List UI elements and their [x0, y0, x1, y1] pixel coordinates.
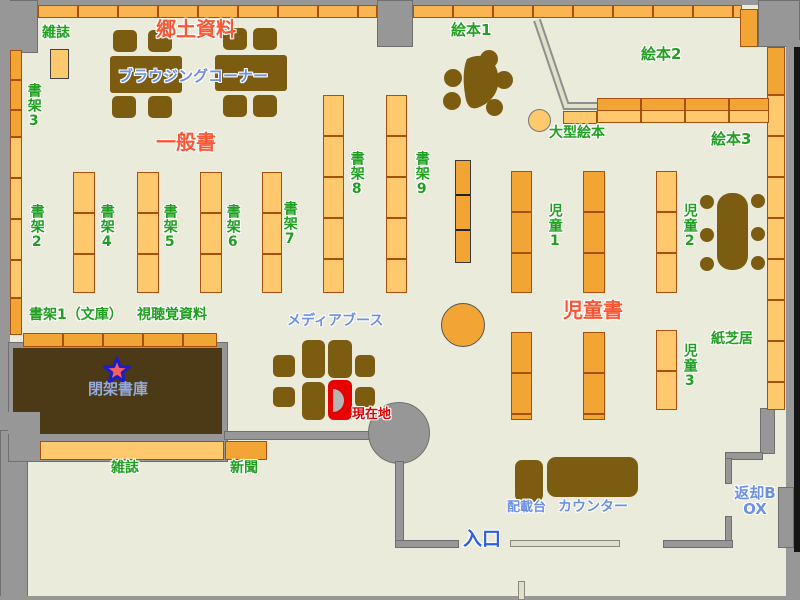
- label-large-picture-book: 大型絵本: [549, 126, 605, 141]
- children-table-chair: [700, 257, 714, 271]
- label-audiovisual: 視聴覚資料: [137, 308, 207, 323]
- label-picture-book2: 絵本2: [641, 47, 681, 63]
- label-kamishibai: 紙芝居: [711, 332, 753, 347]
- ehon1-chair: [443, 92, 461, 110]
- round-table: [441, 303, 485, 347]
- entrance-door: [510, 540, 620, 547]
- wall-right-black-strip: [794, 47, 800, 552]
- shelf-bunko-row: [23, 333, 217, 347]
- shelf-children-upper-2: [583, 171, 605, 293]
- children-table-chair: [700, 228, 714, 242]
- ehon1-chair: [495, 71, 513, 89]
- label-picture-book3: 絵本3: [711, 132, 751, 148]
- wall-mid-horizontal: [224, 431, 370, 440]
- browsing-chair: [113, 30, 137, 52]
- children-table-chair: [700, 195, 714, 209]
- large-picture-book-stand: [528, 109, 551, 132]
- media-booth-seat: [355, 387, 375, 407]
- children-table: [717, 193, 748, 270]
- shelf-children-lower-3: [656, 330, 677, 410]
- label-magazine-top: 雑誌: [42, 26, 70, 41]
- label-children3: 児童3: [682, 343, 697, 390]
- counter-desk: [547, 457, 638, 497]
- shelf-children-upper-1: [511, 171, 532, 293]
- shelf-left-wall-upper: [10, 50, 22, 137]
- media-booth-carrel: [302, 340, 325, 378]
- label-children2: 児童2: [682, 203, 697, 250]
- label-entrance: 入口: [463, 530, 501, 550]
- label-closed-stacks: 閉架書庫: [88, 382, 148, 398]
- shelf-column-8: [323, 95, 344, 293]
- browsing-chair: [112, 96, 136, 118]
- diagonal-partition-fill: [537, 20, 597, 106]
- shelf-children-lower-1: [511, 332, 532, 420]
- shelf-topright-vertical: [740, 9, 758, 47]
- shelf-column-9: [386, 95, 407, 293]
- label-media-booth: メディアブース: [287, 314, 383, 329]
- label-shelf5: 書架5: [162, 204, 177, 251]
- children-table-chair: [751, 227, 765, 241]
- ehon1-chair: [444, 69, 462, 87]
- label-magazine-bottom: 雑誌: [111, 461, 139, 476]
- media-booth-carrel: [328, 340, 352, 378]
- shelf-right-upper: [767, 47, 785, 95]
- shelf-children-upper-3: [656, 171, 677, 293]
- shelf-top-row-right: [413, 5, 742, 18]
- shelf-ehon2-row-end: [563, 111, 597, 124]
- media-booth-seat: [355, 355, 375, 377]
- wall-returnbox-top: [760, 408, 775, 454]
- shelf-magazine-top: [50, 49, 69, 79]
- shelf-ehon2-row-lower: [597, 110, 769, 123]
- media-booth-seat: [273, 355, 295, 377]
- label-shelf4: 書架4: [99, 204, 114, 251]
- wall-returnbox-v2: [725, 516, 732, 541]
- shelf-newspaper: [225, 441, 267, 460]
- ehon1-chair: [480, 50, 498, 68]
- label-shelf8: 書架8: [349, 151, 364, 198]
- wall-bottom-line: [0, 596, 800, 600]
- shelf-thin-divided: [455, 160, 471, 263]
- label-browsing-corner: ブラウジングコーナー: [118, 69, 268, 85]
- label-current-location: 現在地: [352, 408, 391, 422]
- label-children1: 児童1: [547, 203, 562, 250]
- browsing-chair: [253, 95, 277, 117]
- shelf-magazine-bottom: [40, 441, 224, 460]
- label-return-box: 返却BOX: [732, 486, 778, 518]
- label-picture-book1: 絵本1: [451, 23, 491, 39]
- label-shelf1-bunko: 書架1（文庫）: [29, 308, 123, 323]
- shelf-column-7: [262, 172, 282, 293]
- shelf-children-lower-2: [583, 332, 605, 420]
- label-newspaper: 新聞: [230, 461, 258, 476]
- wall-closed-stacks-notch: [8, 412, 40, 434]
- label-distribution-table: 配載台: [507, 501, 546, 515]
- label-shelf3: 書架3: [26, 83, 41, 130]
- shelf-column-4: [73, 172, 95, 293]
- wall-pillar-top: [377, 0, 413, 47]
- label-shelf9: 書架9: [414, 151, 429, 198]
- wall-entrance-right: [663, 540, 733, 548]
- label-shelf6: 書架6: [225, 204, 240, 251]
- shelf-right-wall-strip: [767, 95, 785, 410]
- browsing-chair: [223, 95, 247, 117]
- label-general-books: 一般書: [156, 132, 216, 153]
- label-local-history: 郷土資料: [156, 19, 236, 40]
- shelf-column-6: [200, 172, 222, 293]
- library-floor-map: 雑誌 郷土資料 ブラウジングコーナー 絵本1 絵本2 絵本3 大型絵本 書架3 …: [0, 0, 800, 600]
- small-door: [518, 581, 525, 600]
- shelf-column-5: [137, 172, 159, 293]
- wall-entrance-vertical: [395, 461, 404, 546]
- label-shelf2: 書架2: [29, 204, 44, 251]
- label-counter: カウンター: [558, 500, 628, 515]
- wall-returnbox-v1: [725, 458, 732, 484]
- browsing-chair: [253, 28, 277, 50]
- ehon1-chair: [486, 99, 503, 116]
- label-children-books: 児童書: [563, 300, 623, 321]
- diagonal-partition: [537, 20, 597, 106]
- children-table-chair: [751, 194, 765, 208]
- shelf-left-wall-lower: [10, 298, 22, 335]
- media-booth-carrel: [302, 382, 325, 420]
- label-shelf7: 書架7: [282, 201, 297, 248]
- children-table-chair: [751, 256, 765, 270]
- wall-returnbox-right: [778, 487, 794, 548]
- shelf-left-wall-middle: [10, 137, 22, 298]
- media-booth-seat: [273, 387, 295, 407]
- wall-entrance-left: [395, 540, 459, 548]
- distribution-table: [515, 460, 543, 502]
- browsing-chair: [148, 96, 172, 118]
